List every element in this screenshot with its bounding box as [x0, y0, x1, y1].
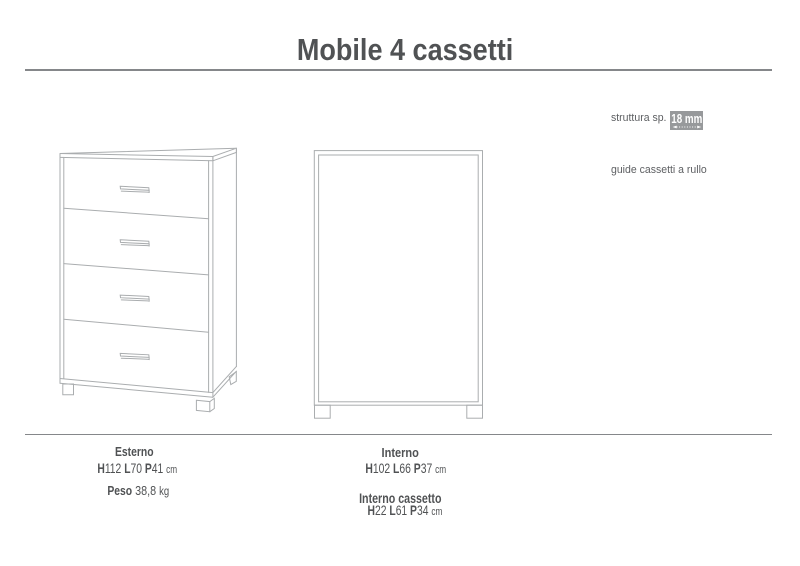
svg-text:18 mm: 18 mm — [672, 111, 703, 126]
